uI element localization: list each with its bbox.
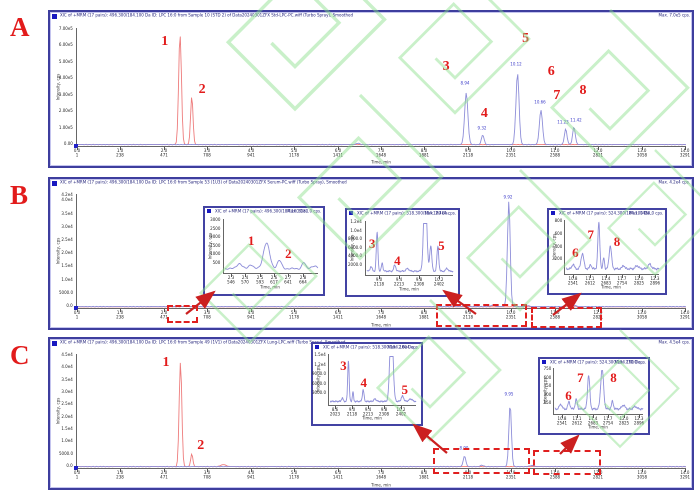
y-tick-label: 1.0e4 [62,439,73,443]
x-tick-label: 9.02118 [346,408,356,417]
y-tick-label: 750 [543,367,551,371]
x-tick-mark [251,309,252,312]
panel-a-max-label: Max. 7.0e5 cps. [658,13,690,18]
x-tick-mark [335,406,336,409]
x-tick-label: 0.01 [74,311,80,320]
x-tick-mark [164,147,165,150]
x-tick-mark [642,309,643,312]
x-tick-mark [294,147,295,150]
x-tick-label: 12.32896 [634,417,644,426]
x-axis-title: Time, min [371,323,391,328]
x-axis-title: Time, min [260,285,280,290]
y-tick-label: 5.00e5 [59,60,73,64]
y-tick-label: 4.5e4 [62,353,73,357]
inset-max-label: Max. 2.6e4 cps. [387,345,419,350]
x-tick-label: 12.02821 [593,149,603,158]
y-tick-label: 4.00e5 [59,76,73,80]
panel-b-max-label: Max. 4.2e4 cps. [658,180,690,185]
y-tick-label: 7.00e5 [59,27,73,31]
x-tick-label: 10.22402 [434,278,444,287]
window-icon [349,211,353,215]
y-tick-label: 1.2e4 [351,220,362,224]
x-tick-label: 2.7641 [285,276,293,285]
x-tick-mark [294,469,295,472]
inset-max-label: Max. 770.0 cps. [614,360,646,365]
x-tick-mark [639,275,640,278]
y-tick-label: 5000.0 [59,451,73,455]
plot-area [328,354,416,406]
window-icon [52,14,57,19]
x-tick-mark [642,147,643,150]
zoom-source-box-peaks-3-5 [433,448,530,474]
x-tick-mark [419,276,420,279]
x-tick-label: 6.01411 [332,149,342,158]
chromatogram-panel-c: XIC of +MRM (17 pairs): 496.300/184.100 … [48,337,694,490]
panel-label-c: C [10,340,30,371]
x-tick-mark [164,469,165,472]
x-tick-mark [368,406,369,409]
y-tick-label: 1.00e5 [59,125,73,129]
zoom-source-box-peaks-6-8 [531,307,602,328]
y-tick-label: 2000.0 [348,262,362,266]
x-tick-label: 3.0708 [203,471,211,480]
x-axis-title: Time, min [362,416,382,421]
x-tick-label: 11.12612 [585,277,595,286]
blue-trace [330,357,416,403]
x-tick-label: 5.01178 [289,311,299,320]
x-tick-mark [164,309,165,312]
x-tick-label: 3.0708 [203,311,211,320]
x-tick-label: 11.12612 [572,417,582,426]
y-tick-label: 2.0e4 [62,251,73,255]
x-tick-mark [608,415,609,418]
x-tick-mark [624,415,625,418]
x-tick-mark [352,406,353,409]
x-tick-mark [207,469,208,472]
x-tick-mark [399,276,400,279]
x-tick-label: 4.0941 [247,311,255,320]
x-tick-label: 14.03291 [680,149,690,158]
x-tick-mark [577,415,578,418]
zoom-source-box-peaks-6-8 [533,450,601,475]
x-tick-label: 9.02118 [374,278,384,287]
x-tick-mark [439,276,440,279]
y-tick-label: 0.0 [67,304,73,308]
x-tick-mark [251,469,252,472]
panel-a-header: XIC of +MRM (17 pairs): 496.300/184.100 … [50,12,692,20]
x-tick-label: 11.02588 [550,149,560,158]
x-tick-mark [590,275,591,278]
chromatogram-panel-a: XIC of +MRM (17 pairs): 496.300/184.100 … [48,10,694,168]
y-tick-label: 4.0e4 [62,198,73,202]
y-tick-label: 4.0e4 [62,365,73,369]
window-icon [52,181,57,186]
x-tick-label: 10.82541 [568,277,578,286]
x-tick-mark [573,275,574,278]
x-tick-label: 13.03058 [636,471,646,480]
x-tick-label: 8.62023 [330,408,340,417]
y-axis-title: Intensity, cps [56,238,61,265]
x-tick-mark [622,275,623,278]
zoom-source-box-peaks-1-2 [167,305,198,323]
x-tick-mark [639,415,640,418]
x-tick-mark [424,147,425,150]
x-tick-mark [381,147,382,150]
x-tick-label: 10.22402 [396,408,406,417]
y-tick-label: 2.00e5 [59,109,73,113]
x-tick-label: 8.01881 [419,311,429,320]
blue-trace [78,74,686,145]
x-tick-mark [468,147,469,150]
x-tick-label: 1.0238 [117,471,125,480]
y-tick-label: 2.5e4 [62,402,73,406]
x-tick-label: 7.01648 [376,471,386,480]
x-tick-label: 14.03291 [680,471,690,480]
x-tick-label: 4.0941 [247,471,255,480]
y-tick-label: 0.0 [67,464,73,468]
x-tick-label: 2.3546 [227,276,235,285]
plot-area [223,219,318,274]
x-tick-mark [338,309,339,312]
x-tick-label: 13.03058 [636,149,646,158]
x-tick-label: 5.01178 [289,149,299,158]
x-tick-mark [555,147,556,150]
x-axis-title: Time, min [601,285,621,290]
x-tick-mark [120,309,121,312]
y-tick-label: 1.5e4 [62,264,73,268]
x-tick-label: 0.01 [74,471,80,480]
panel-label-b: B [10,180,28,211]
y-tick-label: 1.0e4 [351,228,362,232]
x-tick-mark [685,469,686,472]
inset-max-label: Max. 1480.0 cps. [629,211,663,216]
x-tick-label: 2.0471 [160,471,168,480]
x-tick-label: 7.01648 [376,149,386,158]
window-icon [542,360,546,364]
y-axis-title: Intensity, cps [350,235,355,262]
x-tick-label: 6.01411 [332,311,342,320]
panel-label-a: A [10,12,30,43]
y-tick-label: 5000.0 [59,291,73,295]
window-icon [207,209,211,213]
plot-area [365,221,453,276]
x-tick-label: 2.8664 [299,276,307,285]
x-tick-mark [642,469,643,472]
y-tick-label: 500 [212,260,220,264]
figure-chromatograms: { "colors": { "frame": "#3e3e9e", "red_t… [0,0,700,496]
x-tick-label: 6.01411 [332,471,342,480]
x-tick-mark [120,469,121,472]
x-tick-mark [424,469,425,472]
x-tick-label: 2.4570 [242,276,250,285]
y-axis-title: Intensity, cps [56,398,61,425]
x-tick-mark [338,147,339,150]
x-tick-mark [338,469,339,472]
x-axis-title: Time, min [399,287,419,292]
y-axis-title: Intensity, cps [552,234,557,261]
x-tick-label: 1.0238 [117,149,125,158]
y-tick-label: 3.5e4 [62,377,73,381]
y-tick-label: 1.0e4 [62,277,73,281]
y-tick-label: 1.5e4 [62,427,73,431]
y-tick-label: 4.2e4 [62,193,73,197]
x-axis-ticks: 0.011.02382.04713.07084.09415.011786.014… [76,147,686,160]
x-tick-mark [294,309,295,312]
y-tick-label: 3.0e4 [62,390,73,394]
inset-max-label: Max. 3180.0 cps. [287,209,321,214]
x-axis-ticks: 10.8254111.1261211.4268311.7275412.02825… [564,275,659,285]
panel-b-header: XIC of +MRM (17 pairs): 496.300/184.100 … [50,179,692,187]
inset-b-peaks-6-8: XIC of +MRM (17 pairs): 524.300/184.100 … [547,208,667,295]
x-tick-mark [207,147,208,150]
window-icon [551,211,555,215]
panel-c-title: XIC of +MRM (17 pairs): 496.300/184.100 … [60,340,345,345]
x-tick-label: 9.82308 [414,278,424,287]
y-tick-label: 2.0e4 [62,414,73,418]
x-tick-label: 12.32896 [650,277,660,286]
y-axis-title: Intensity, cps [543,378,548,405]
inset-b-peaks-1-2: XIC of +MRM (17 pairs): 496.300/184.100 … [203,206,325,296]
x-tick-mark [288,274,289,277]
inset-c-peaks-3-5: XIC of +MRM (17 pairs): 518.300/184.100 … [311,342,423,426]
x-tick-label: 5.01178 [289,471,299,480]
x-tick-label: 9.42213 [394,278,404,287]
panel-a-title: XIC of +MRM (17 pairs): 496.300/184.100 … [60,13,353,18]
x-tick-label: 2.6617 [270,276,278,285]
y-tick-label: 3.5e4 [62,211,73,215]
blue-trace [566,223,659,270]
y-tick-label: 3.00e5 [59,93,73,97]
y-tick-label: 2500 [210,226,220,230]
x-tick-label: 10.02351 [506,149,516,158]
x-tick-label: 9.02118 [463,149,473,158]
x-tick-mark [424,309,425,312]
x-tick-label: 3.0708 [203,149,211,158]
window-icon [315,345,319,349]
x-tick-mark [685,147,686,150]
inset-c-peaks-6-8: XIC of +MRM (17 pairs): 524.300/184.100 … [538,357,650,435]
x-tick-mark [598,147,599,150]
x-axis-ticks: 10.8254111.1261211.4268311.7275412.02825… [553,415,643,425]
x-axis-ticks: 2.35462.45702.55932.66172.76412.8664 [223,274,318,285]
x-tick-mark [231,274,232,277]
x-tick-label: 10.82541 [557,417,567,426]
zoom-source-box-peaks-3-5 [436,304,527,327]
x-tick-mark [303,274,304,277]
x-axis-ticks: 9.021189.422139.8230810.22402 [365,276,453,287]
inset-max-label: Max. 2.4e4 cps. [424,211,456,216]
plot-area [76,28,686,147]
x-tick-label: 7.01648 [376,311,386,320]
x-tick-mark [511,147,512,150]
x-tick-label: 8.01881 [419,471,429,480]
x-axis-title: Time, min [588,425,608,430]
x-tick-mark [245,274,246,277]
y-tick-label: 3000 [210,218,220,222]
plot-area [564,220,659,275]
x-tick-mark [685,309,686,312]
blue-trace [225,243,318,269]
y-axis-title: Intensity, cps [208,233,213,260]
x-tick-label: 13.03058 [636,311,646,320]
window-icon [52,341,57,346]
x-tick-mark [593,415,594,418]
y-axis-ticks: 4.2e44.0e43.5e43.0e42.5e42.0e41.5e41.0e4… [50,194,74,309]
x-axis-title: Time, min [371,160,391,165]
y-axis-ticks: 7.00e56.00e55.00e54.00e53.00e52.00e51.00… [50,28,74,147]
x-tick-label: 0.01 [74,149,80,158]
blue-trace [367,224,453,272]
x-tick-label: 1.0238 [117,311,125,320]
x-axis-title: Time, min [371,483,391,488]
x-tick-label: 12.02825 [634,277,644,286]
red-trace [78,37,686,145]
x-tick-label: 4.0941 [247,149,255,158]
x-tick-mark [562,415,563,418]
x-axis-ticks: 8.620239.021189.422139.8230810.22402 [328,406,416,416]
y-tick-label: 2.5e4 [62,238,73,242]
panel-c-max-label: Max. 4.5e4 cps. [658,340,690,345]
y-tick-label: 6.00e5 [59,43,73,47]
x-tick-mark [381,469,382,472]
x-tick-label: 8.01881 [419,149,429,158]
y-axis-title: Intensity, cps [56,74,61,101]
x-tick-mark [274,274,275,277]
x-tick-mark [381,309,382,312]
inset-b-peaks-3-5: XIC of +MRM (17 pairs): 518.300/184.100 … [345,208,460,297]
x-tick-mark [401,406,402,409]
x-tick-mark [207,309,208,312]
x-tick-label: 14.03291 [680,311,690,320]
y-tick-label: 800 [554,219,562,223]
y-tick-label: 3.0e4 [62,225,73,229]
blue-trace [555,371,643,411]
y-tick-label: 1.5e4 [315,353,326,357]
x-tick-mark [260,274,261,277]
panel-b-title: XIC of +MRM (17 pairs): 496.300/184.100 … [60,180,347,185]
x-tick-mark [606,275,607,278]
x-tick-mark [655,275,656,278]
y-tick-label: 0.00 [64,142,73,146]
plot-area [553,368,643,415]
x-tick-label: 12.02825 [619,417,629,426]
x-tick-label: 2.5593 [256,276,264,285]
y-axis-title: Intensity, cps [316,366,321,393]
chromatogram-panel-b: XIC of +MRM (17 pairs): 496.300/184.100 … [48,177,694,330]
y-axis-ticks: 4.5e44.0e43.5e43.0e42.5e42.0e41.5e41.0e4… [50,354,74,469]
x-tick-mark [384,406,385,409]
x-tick-mark [251,147,252,150]
x-tick-mark [120,147,121,150]
x-tick-label: 2.0471 [160,149,168,158]
x-tick-mark [379,276,380,279]
